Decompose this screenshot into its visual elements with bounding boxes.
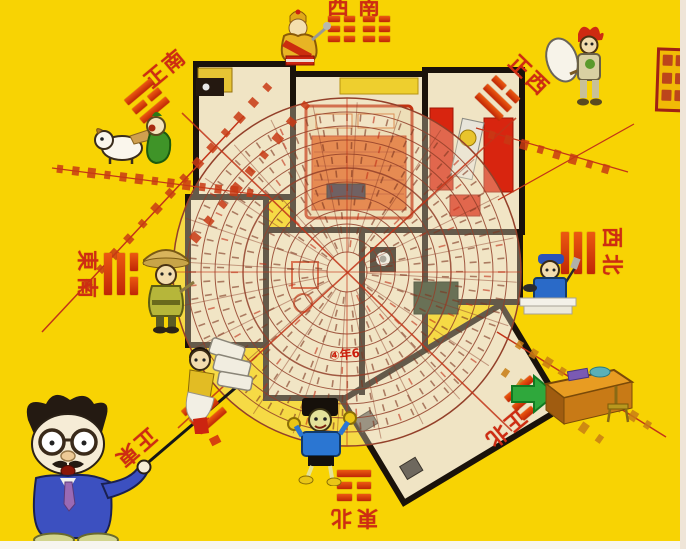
- yellow-cabinet: [340, 78, 418, 94]
- farmer-character: [134, 238, 200, 338]
- direction-label-northeast: 東北: [326, 507, 378, 528]
- money-carrier-character: [174, 336, 260, 438]
- frame-strip: [0, 541, 686, 549]
- feng-shui-poster: ④年6 正南 西南 東南 正東 東北 正北 西北 正西: [0, 0, 686, 549]
- craftsman-character: [518, 252, 584, 320]
- direction-label-southeast: 東南: [76, 250, 97, 304]
- trigram-xun-icon: [104, 253, 138, 295]
- stove-knob: [203, 84, 210, 91]
- fortune-god-character: [272, 6, 334, 70]
- direction-label-northwest: 西北: [601, 227, 622, 281]
- flying-star-note: ④年6: [329, 345, 361, 363]
- dog-with-sprout-character: [90, 106, 182, 172]
- desk-scene: [510, 360, 640, 440]
- boy-with-sack-character: [540, 22, 612, 126]
- running-boy-character: [286, 396, 358, 490]
- trigram-kun-icon: [328, 16, 390, 46]
- frame-strip: [680, 0, 686, 549]
- professor-character: [6, 386, 162, 549]
- stove: [196, 78, 224, 96]
